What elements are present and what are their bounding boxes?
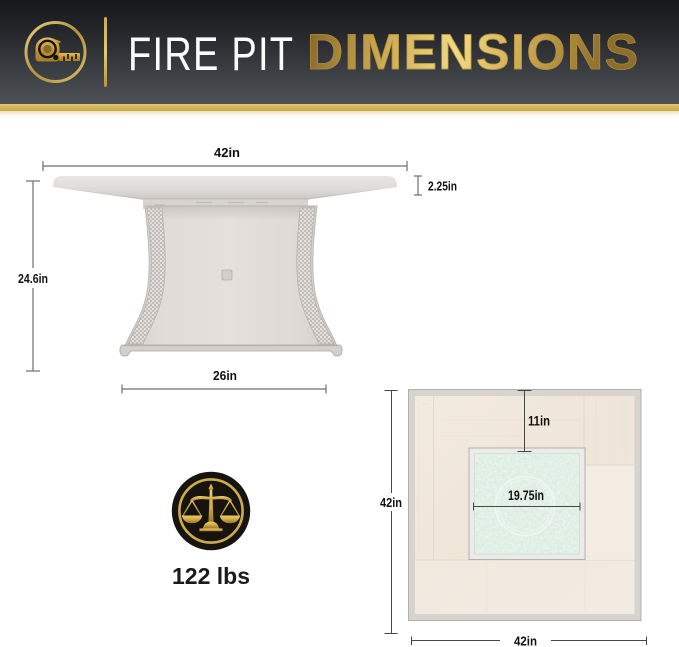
svg-text:24.6in: 24.6in [18,272,48,286]
svg-text:42in: 42in [380,495,402,510]
svg-text:42in: 42in [214,145,240,160]
svg-text:19.75in: 19.75in [508,488,544,503]
svg-text:11in: 11in [528,414,550,429]
svg-text:2.25in: 2.25in [428,180,457,194]
svg-text:42in: 42in [514,634,537,647]
svg-text:26in: 26in [213,368,237,383]
